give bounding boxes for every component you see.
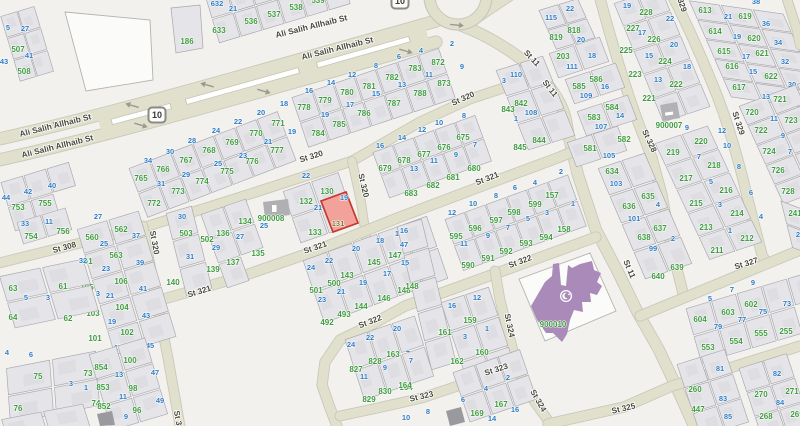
svg-text:23: 23 [102, 264, 110, 273]
svg-text:17: 17 [383, 269, 391, 278]
svg-text:103: 103 [610, 179, 623, 188]
svg-text:115: 115 [545, 13, 557, 22]
svg-text:27: 27 [236, 232, 244, 241]
svg-text:33: 33 [21, 219, 29, 228]
svg-text:11: 11 [430, 156, 438, 165]
svg-text:776: 776 [245, 157, 259, 166]
svg-text:6: 6 [749, 188, 753, 197]
svg-text:11: 11 [360, 372, 368, 381]
svg-text:755: 755 [38, 199, 52, 208]
svg-text:10: 10 [402, 413, 410, 422]
svg-text:161: 161 [438, 328, 452, 337]
svg-text:271: 271 [785, 387, 799, 396]
svg-text:109: 109 [580, 91, 593, 100]
svg-text:638: 638 [637, 233, 651, 242]
svg-text:680: 680 [467, 164, 481, 173]
svg-text:775: 775 [220, 167, 234, 176]
svg-text:82: 82 [773, 369, 781, 378]
svg-text:829: 829 [362, 395, 376, 404]
svg-text:211: 211 [711, 246, 724, 255]
svg-text:843: 843 [501, 105, 515, 114]
svg-text:9: 9 [460, 62, 464, 71]
svg-text:604: 604 [693, 315, 707, 324]
svg-text:21: 21 [337, 287, 345, 296]
svg-text:24: 24 [212, 126, 221, 135]
svg-text:47: 47 [151, 368, 159, 377]
svg-text:3: 3 [69, 379, 73, 388]
svg-text:101: 101 [628, 214, 641, 223]
svg-text:8: 8 [374, 61, 378, 70]
svg-text:215: 215 [689, 199, 703, 208]
svg-text:260: 260 [688, 385, 702, 394]
svg-text:788: 788 [413, 89, 427, 98]
svg-text:11: 11 [460, 239, 468, 248]
svg-text:830: 830 [378, 387, 392, 396]
svg-text:619: 619 [738, 12, 752, 21]
svg-text:773: 773 [171, 187, 185, 196]
svg-text:900010: 900010 [540, 320, 567, 329]
svg-text:786: 786 [357, 109, 371, 118]
svg-text:143: 143 [340, 271, 354, 280]
svg-text:9: 9 [751, 278, 755, 287]
svg-text:22: 22 [566, 4, 574, 13]
svg-text:20: 20 [393, 324, 401, 333]
svg-text:634: 634 [605, 167, 619, 176]
svg-text:676: 676 [437, 143, 451, 152]
svg-text:10: 10 [469, 199, 477, 208]
svg-text:25: 25 [214, 159, 222, 168]
svg-text:133: 133 [308, 228, 322, 237]
svg-text:21: 21 [229, 4, 237, 13]
svg-text:11: 11 [770, 114, 778, 123]
svg-text:9: 9 [685, 123, 689, 132]
svg-text:721: 721 [773, 95, 787, 104]
svg-text:493: 493 [337, 310, 351, 319]
svg-text:163: 163 [386, 350, 400, 359]
svg-text:18: 18 [376, 236, 384, 245]
svg-text:842: 842 [514, 99, 528, 108]
svg-text:753: 753 [11, 203, 25, 212]
svg-text:20: 20 [352, 244, 360, 253]
svg-text:228: 228 [639, 8, 653, 17]
svg-text:12: 12 [448, 208, 456, 217]
svg-text:159: 159 [463, 316, 477, 325]
svg-text:39: 39 [136, 258, 144, 267]
svg-text:724: 724 [762, 147, 776, 156]
svg-text:136: 136 [216, 229, 230, 238]
svg-text:61: 61 [59, 282, 68, 291]
svg-text:7: 7 [788, 147, 792, 156]
svg-text:18: 18 [683, 62, 691, 71]
svg-text:18: 18 [280, 99, 288, 108]
svg-text:772: 772 [147, 199, 161, 208]
svg-text:598: 598 [507, 208, 521, 217]
svg-text:6: 6 [397, 52, 401, 61]
svg-text:17: 17 [346, 100, 354, 109]
svg-text:15: 15 [401, 258, 409, 267]
svg-text:23: 23 [239, 151, 247, 160]
svg-text:22: 22 [325, 256, 333, 265]
svg-text:21: 21 [264, 137, 272, 146]
svg-text:900008: 900008 [258, 214, 285, 223]
svg-text:132: 132 [299, 197, 313, 206]
svg-text:592: 592 [499, 247, 513, 256]
svg-text:85: 85 [724, 412, 732, 421]
svg-text:633: 633 [212, 26, 226, 35]
svg-text:17: 17 [742, 52, 750, 61]
svg-text:21: 21 [314, 203, 322, 212]
svg-text:12: 12 [418, 125, 426, 134]
svg-text:6: 6 [461, 395, 465, 404]
svg-text:9: 9 [124, 412, 128, 421]
svg-text:768: 768 [202, 146, 216, 155]
svg-text:43: 43 [142, 311, 150, 320]
svg-text:214: 214 [730, 209, 744, 218]
svg-text:19: 19 [288, 127, 296, 136]
svg-text:5: 5 [6, 23, 10, 32]
svg-text:9: 9 [486, 231, 490, 240]
svg-text:22: 22 [666, 14, 674, 23]
svg-text:102: 102 [120, 328, 134, 337]
svg-text:44: 44 [2, 193, 11, 202]
svg-text:12: 12 [718, 126, 726, 135]
svg-text:162: 162 [450, 357, 464, 366]
svg-text:5: 5 [709, 177, 713, 186]
svg-text:3: 3 [718, 200, 722, 209]
svg-text:16: 16 [376, 141, 384, 150]
svg-text:64: 64 [9, 313, 18, 322]
svg-text:614: 614 [708, 27, 722, 36]
svg-text:780: 780 [340, 88, 354, 97]
svg-text:145: 145 [367, 258, 381, 267]
svg-text:221: 221 [642, 94, 656, 103]
svg-text:269: 269 [790, 410, 800, 419]
svg-text:38: 38 [752, 0, 760, 6]
svg-text:1: 1 [571, 199, 575, 208]
svg-text:219: 219 [666, 148, 680, 157]
svg-text:636: 636 [622, 202, 636, 211]
svg-text:76: 76 [14, 404, 23, 413]
svg-text:621: 621 [755, 49, 769, 58]
svg-text:21: 21 [724, 12, 732, 21]
svg-text:582: 582 [617, 135, 631, 144]
svg-text:16: 16 [448, 301, 456, 310]
svg-text:766: 766 [156, 165, 170, 174]
svg-text:617: 617 [732, 83, 746, 92]
svg-text:160: 160 [475, 348, 489, 357]
svg-text:30: 30 [166, 147, 174, 156]
svg-text:622: 622 [764, 72, 778, 81]
svg-text:597: 597 [489, 216, 503, 225]
svg-text:3: 3 [463, 332, 467, 341]
svg-text:1: 1 [84, 383, 88, 392]
svg-text:62: 62 [64, 314, 73, 323]
svg-text:9: 9 [454, 150, 458, 159]
svg-text:12: 12 [348, 70, 356, 79]
svg-text:2: 2 [796, 230, 800, 239]
svg-text:16: 16 [400, 226, 408, 235]
svg-text:785: 785 [332, 120, 346, 129]
svg-text:7: 7 [730, 285, 734, 294]
svg-text:635: 635 [641, 192, 655, 201]
svg-text:756: 756 [56, 227, 70, 236]
svg-text:22: 22 [302, 171, 310, 180]
svg-text:590: 590 [461, 261, 475, 270]
svg-text:602: 602 [744, 300, 758, 309]
svg-text:765: 765 [134, 174, 148, 183]
svg-text:158: 158 [557, 225, 571, 234]
svg-text:492: 492 [320, 318, 334, 327]
svg-text:5: 5 [708, 294, 712, 303]
svg-text:20: 20 [257, 108, 265, 117]
svg-text:583: 583 [587, 113, 601, 122]
svg-text:13: 13 [398, 80, 406, 89]
svg-text:212: 212 [740, 234, 754, 243]
svg-text:41: 41 [139, 284, 147, 293]
svg-text:81: 81 [716, 364, 724, 373]
svg-text:853: 853 [96, 383, 110, 392]
svg-text:148: 148 [405, 282, 419, 291]
svg-text:24: 24 [307, 263, 316, 272]
svg-text:537: 537 [267, 10, 281, 19]
svg-text:900007: 900007 [656, 121, 683, 130]
svg-text:501: 501 [309, 286, 323, 295]
svg-text:562: 562 [114, 225, 128, 234]
svg-text:11: 11 [119, 392, 127, 401]
svg-text:581: 581 [583, 144, 597, 153]
svg-text:14: 14 [616, 111, 625, 120]
svg-text:7: 7 [697, 152, 701, 161]
svg-text:8: 8 [494, 191, 498, 200]
svg-text:7: 7 [473, 140, 477, 149]
svg-text:508: 508 [17, 67, 31, 76]
svg-text:13: 13 [654, 75, 662, 84]
svg-text:21: 21 [106, 291, 114, 300]
svg-text:11: 11 [425, 70, 433, 79]
svg-text:140: 140 [166, 278, 180, 287]
svg-text:16: 16 [601, 82, 609, 91]
svg-text:507: 507 [11, 45, 25, 54]
svg-text:101: 101 [88, 334, 102, 343]
svg-text:12: 12 [473, 293, 481, 302]
svg-text:3: 3 [96, 289, 100, 298]
svg-text:42: 42 [24, 187, 32, 196]
svg-text:2: 2 [450, 39, 454, 48]
svg-text:723: 723 [784, 116, 798, 125]
svg-text:728: 728 [781, 187, 795, 196]
svg-text:538: 538 [289, 3, 303, 12]
svg-text:139: 139 [206, 265, 220, 274]
svg-text:591: 591 [481, 254, 495, 263]
svg-text:29: 29 [212, 243, 220, 252]
svg-text:19: 19 [359, 278, 367, 287]
svg-text:679: 679 [378, 164, 392, 173]
svg-text:603: 603 [721, 308, 735, 317]
svg-text:146: 146 [377, 294, 391, 303]
svg-text:8: 8 [426, 407, 430, 416]
svg-text:585: 585 [572, 82, 586, 91]
svg-text:218: 218 [707, 161, 721, 170]
svg-text:8: 8 [737, 162, 741, 171]
svg-text:596: 596 [468, 224, 482, 233]
svg-text:19: 19 [108, 317, 116, 326]
svg-text:779: 779 [318, 96, 332, 105]
svg-text:75: 75 [759, 307, 767, 316]
svg-text:107: 107 [595, 122, 608, 131]
svg-text:164: 164 [398, 381, 412, 390]
svg-text:770: 770 [249, 129, 263, 138]
svg-text:539: 539 [311, 0, 325, 5]
svg-text:3: 3 [502, 76, 506, 85]
svg-text:778: 778 [297, 103, 311, 112]
svg-text:722: 722 [754, 126, 768, 135]
svg-text:32: 32 [781, 57, 789, 66]
svg-text:828: 828 [368, 357, 382, 366]
svg-text:675: 675 [456, 133, 470, 142]
svg-text:784: 784 [311, 129, 325, 138]
svg-text:98: 98 [129, 384, 138, 393]
svg-text:754: 754 [24, 232, 38, 241]
svg-text:844: 844 [532, 136, 546, 145]
svg-text:110: 110 [510, 70, 522, 79]
svg-text:6: 6 [513, 183, 517, 192]
svg-text:47: 47 [400, 240, 408, 249]
svg-text:19: 19 [340, 193, 348, 202]
svg-text:720: 720 [745, 108, 759, 117]
svg-text:268: 268 [759, 412, 773, 421]
svg-text:79: 79 [714, 322, 722, 331]
svg-text:19: 19 [623, 1, 631, 10]
svg-text:1: 1 [485, 324, 489, 333]
svg-text:771: 771 [271, 119, 285, 128]
svg-text:224: 224 [658, 57, 672, 66]
svg-text:682: 682 [426, 181, 440, 190]
svg-text:157: 157 [545, 191, 559, 200]
svg-text:14: 14 [398, 133, 407, 142]
svg-text:131: 131 [332, 219, 345, 228]
svg-text:593: 593 [519, 239, 533, 248]
svg-text:270: 270 [754, 390, 768, 399]
svg-text:135: 135 [251, 249, 265, 258]
svg-text:28: 28 [188, 136, 196, 145]
svg-text:22: 22 [366, 333, 374, 342]
svg-text:41: 41 [25, 51, 33, 60]
svg-text:681: 681 [446, 173, 460, 182]
svg-text:49: 49 [156, 396, 164, 405]
svg-text:769: 769 [225, 138, 239, 147]
svg-text:99: 99 [649, 244, 657, 253]
svg-text:10: 10 [723, 141, 731, 150]
svg-text:108: 108 [525, 108, 538, 117]
svg-text:767: 767 [179, 156, 193, 165]
svg-text:3: 3 [545, 208, 549, 217]
svg-text:84: 84 [776, 398, 785, 407]
svg-text:77: 77 [738, 315, 746, 324]
svg-text:37: 37 [132, 231, 140, 240]
svg-text:9: 9 [383, 363, 387, 372]
svg-text:536: 536 [244, 17, 258, 26]
svg-text:31: 31 [157, 179, 165, 188]
svg-text:639: 639 [670, 263, 684, 272]
svg-text:34: 34 [774, 38, 783, 47]
svg-text:10: 10 [435, 118, 443, 127]
svg-text:216: 216 [719, 186, 733, 195]
svg-text:2: 2 [559, 167, 563, 176]
svg-text:255: 255 [779, 327, 793, 336]
svg-text:1: 1 [514, 114, 518, 123]
svg-text:223: 223 [628, 70, 642, 79]
svg-text:226: 226 [647, 35, 661, 44]
svg-text:15: 15 [749, 67, 757, 76]
svg-text:6: 6 [29, 350, 33, 359]
svg-text:24: 24 [347, 340, 356, 349]
svg-text:15: 15 [372, 89, 380, 98]
svg-text:75: 75 [34, 372, 43, 381]
svg-text:3: 3 [46, 293, 50, 302]
svg-text:613: 613 [698, 6, 712, 15]
svg-text:22: 22 [234, 117, 242, 126]
svg-text:31: 31 [186, 252, 194, 261]
svg-text:137: 137 [226, 258, 240, 267]
svg-text:7: 7 [506, 223, 510, 232]
svg-text:13: 13 [115, 370, 123, 379]
svg-text:9: 9 [781, 131, 785, 140]
svg-text:225: 225 [619, 46, 633, 55]
svg-text:18: 18 [588, 51, 596, 60]
svg-text:13: 13 [762, 92, 770, 101]
svg-text:23: 23 [318, 295, 326, 304]
svg-text:845: 845 [513, 143, 527, 152]
svg-text:106: 106 [114, 277, 128, 286]
svg-text:63: 63 [9, 284, 18, 293]
svg-text:36: 36 [762, 19, 770, 28]
svg-text:10: 10 [395, 0, 405, 6]
svg-text:11: 11 [45, 217, 53, 226]
svg-text:8: 8 [462, 111, 466, 120]
svg-text:25: 25 [100, 239, 108, 248]
svg-text:83: 83 [719, 394, 727, 403]
svg-text:14: 14 [488, 414, 497, 423]
svg-text:213: 213 [699, 223, 713, 232]
svg-text:854: 854 [94, 363, 108, 372]
svg-text:615: 615 [717, 47, 731, 56]
svg-text:111: 111 [566, 62, 578, 71]
svg-text:96: 96 [133, 406, 142, 415]
svg-text:29: 29 [182, 170, 190, 179]
svg-text:616: 616 [725, 62, 739, 71]
svg-text:100: 100 [123, 356, 137, 365]
svg-text:13: 13 [410, 164, 418, 173]
svg-text:105: 105 [603, 151, 616, 160]
svg-text:783: 783 [408, 64, 422, 73]
svg-text:16: 16 [305, 86, 313, 95]
svg-text:43: 43 [0, 57, 8, 66]
svg-text:73: 73 [783, 299, 791, 308]
svg-text:144: 144 [354, 302, 368, 311]
svg-text:30: 30 [178, 212, 186, 221]
svg-text:637: 637 [653, 224, 667, 233]
svg-text:774: 774 [195, 177, 209, 186]
svg-text:852: 852 [97, 402, 111, 411]
svg-text:16: 16 [511, 405, 519, 414]
svg-text:726: 726 [771, 166, 785, 175]
svg-text:220: 220 [694, 137, 708, 146]
svg-text:186: 186 [180, 37, 194, 46]
svg-text:447: 447 [691, 405, 705, 414]
svg-text:34: 34 [144, 156, 153, 165]
svg-text:2: 2 [506, 373, 510, 382]
svg-text:32: 32 [79, 256, 87, 265]
